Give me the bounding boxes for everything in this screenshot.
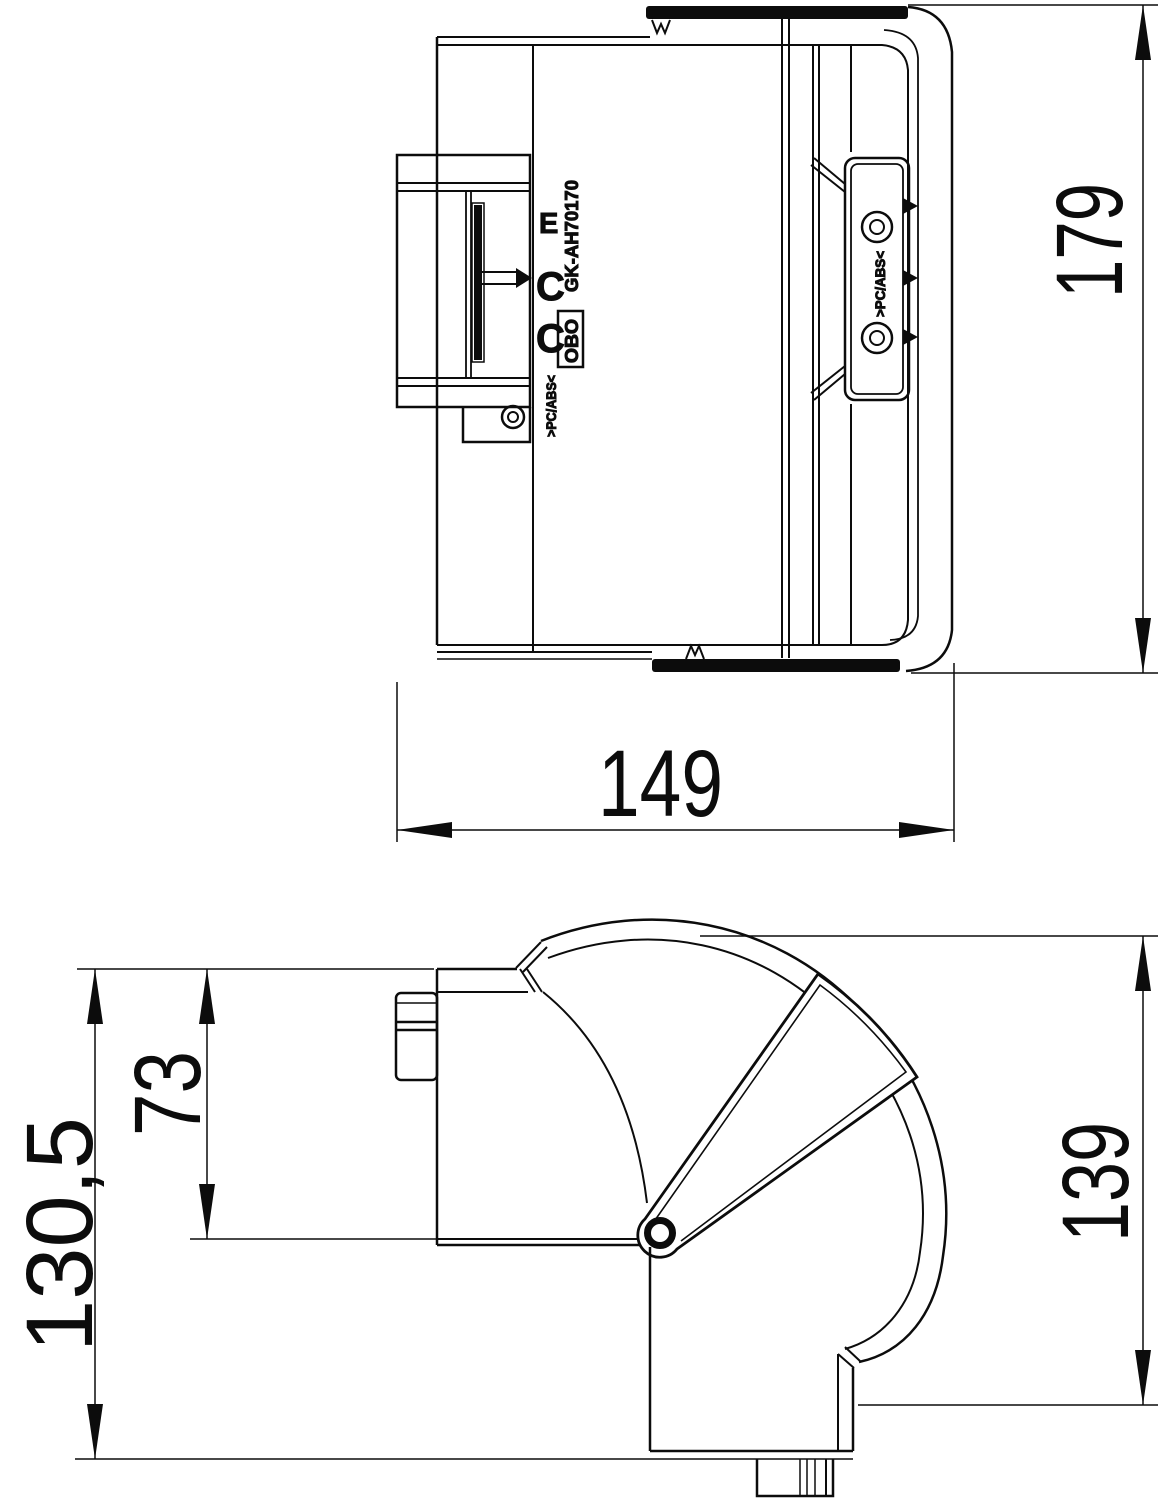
coupling-block: [397, 155, 532, 442]
clip-mark-c2: C: [536, 317, 565, 361]
dim-73-label: 73: [115, 1051, 221, 1136]
arrowhead-icon: [199, 969, 215, 1024]
hinge-pivot-icon: [648, 1221, 673, 1246]
outlet-body: [75, 1247, 860, 1459]
retaining-clip-icon: [903, 198, 918, 214]
plate-screw-bottom-icon: [862, 323, 892, 353]
arrowhead-icon: [899, 822, 954, 838]
technical-drawing-canvas: GK-AH70170 OBO >PC/ABS< >PC/ABS< E C C 1…: [0, 0, 1164, 1500]
arrowhead-icon: [397, 822, 452, 838]
obo-logo-text: OBO: [562, 319, 582, 363]
product-code-text: GK-AH70170: [562, 180, 582, 292]
dim-130-5-label: 130,5: [7, 1117, 113, 1352]
arrowhead-icon: [1135, 5, 1151, 60]
coupling-screw-icon: [502, 406, 524, 428]
top-rail-bar: [646, 6, 908, 33]
outlet-plug-connector: [757, 1459, 833, 1496]
side-duct-body: [437, 942, 647, 1245]
arrowhead-icon: [1135, 618, 1151, 673]
arrowhead-icon: [1135, 1350, 1151, 1405]
dim-179: 179: [908, 5, 1158, 673]
arrowhead-icon: [1135, 936, 1151, 991]
dim-149: 149: [397, 663, 954, 842]
arrowhead-icon: [87, 969, 103, 1024]
coupling-pointer-icon: [482, 268, 532, 288]
retaining-clip-icon: [903, 329, 918, 345]
material-marking-left: >PC/ABS<: [543, 375, 559, 437]
clip-mark-c1: C: [536, 265, 565, 309]
top-view-body-outline: [437, 7, 952, 671]
retaining-clip-icon: [903, 270, 918, 286]
material-marking-plate: >PC/ABS<: [872, 251, 888, 317]
bottom-rail-bar: [652, 646, 900, 672]
arrowhead-icon: [199, 1184, 215, 1239]
mounting-plate: [811, 158, 918, 400]
dim-130-5: 130,5: [7, 969, 434, 1459]
drawing-svg: GK-AH70170 OBO >PC/ABS< >PC/ABS< E C C 1…: [0, 0, 1164, 1500]
swivel-arm: [638, 974, 917, 1257]
dim-179-label: 179: [1037, 183, 1143, 298]
plate-screw-top-icon: [862, 212, 892, 242]
dim-73: 73: [115, 969, 437, 1239]
arrowhead-icon: [87, 1404, 103, 1459]
dim-149-label: 149: [598, 731, 723, 837]
dim-139-label: 139: [1043, 1122, 1149, 1242]
top-view: GK-AH70170 OBO >PC/ABS< >PC/ABS< E C C: [397, 6, 952, 672]
clip-mark-e: E: [539, 208, 558, 240]
side-plug-connector: [396, 993, 437, 1080]
